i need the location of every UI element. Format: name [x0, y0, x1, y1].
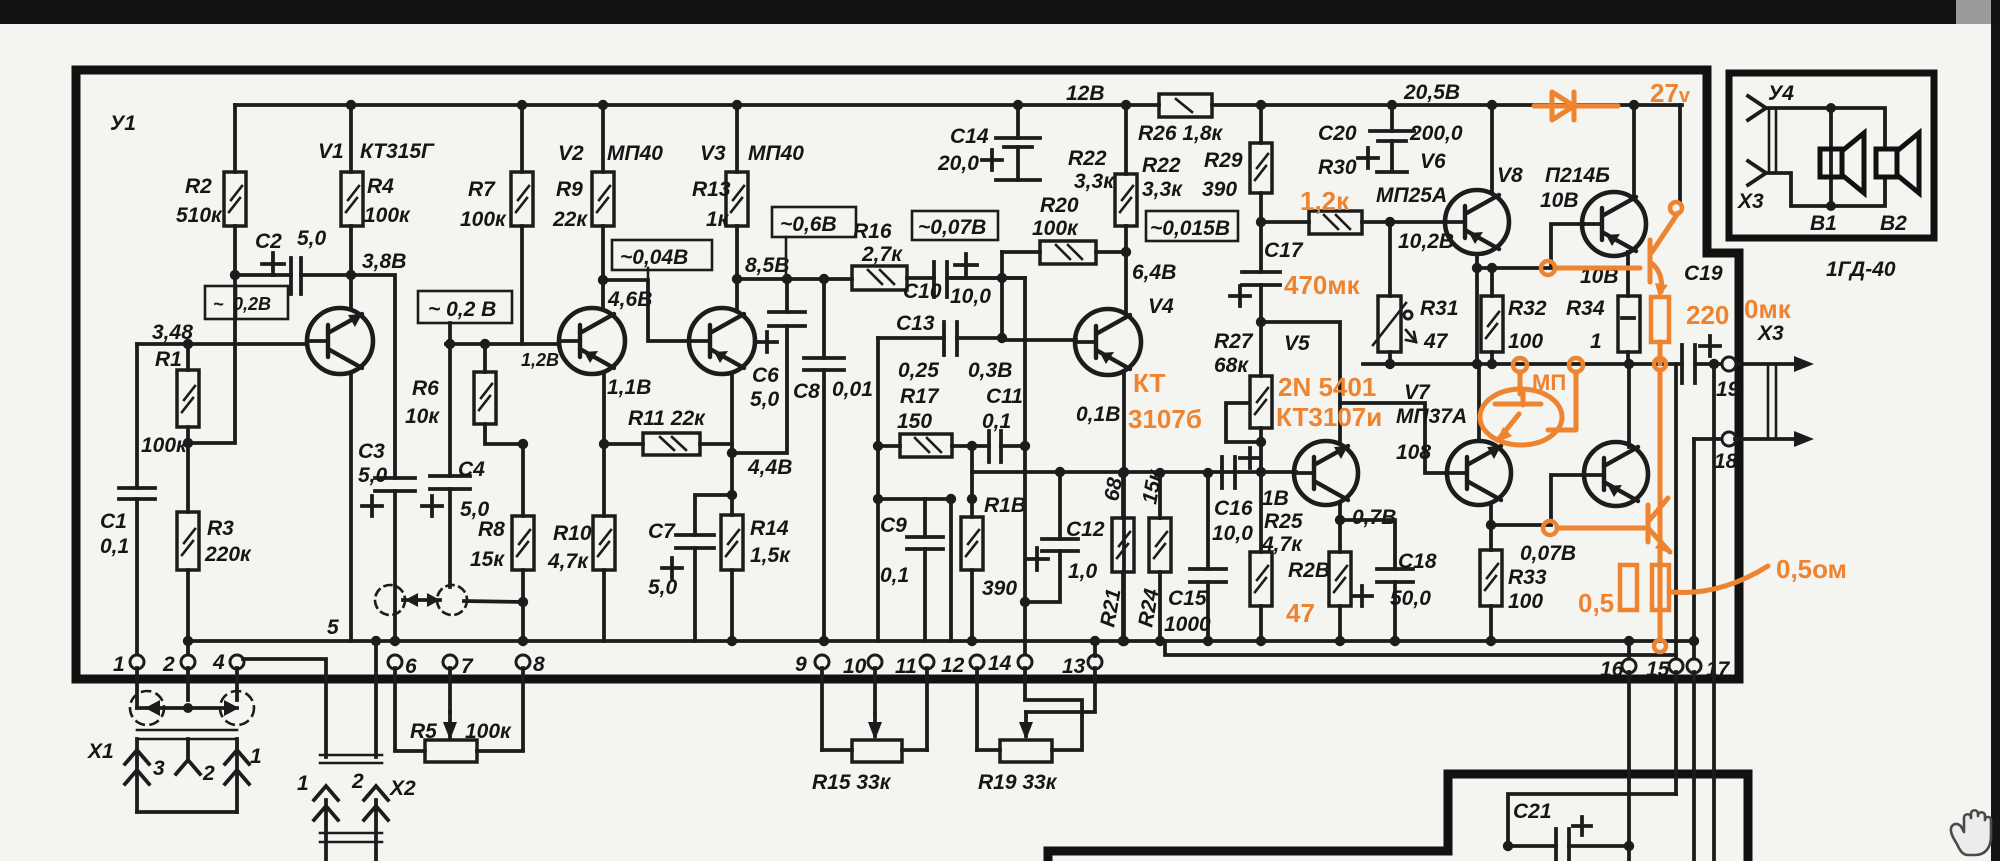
svg-text:47: 47	[1423, 330, 1449, 353]
svg-text:1,2В: 1,2В	[521, 350, 559, 370]
svg-text:12: 12	[941, 654, 965, 677]
svg-text:8: 8	[533, 653, 545, 676]
svg-text:У1: У1	[110, 112, 136, 135]
svg-text:15к: 15к	[470, 548, 505, 571]
svg-text:R1В: R1В	[984, 494, 1026, 517]
svg-text:R34: R34	[1566, 297, 1605, 320]
svg-text:~0,015В: ~0,015В	[1150, 217, 1230, 240]
svg-text:200,0: 200,0	[1409, 122, 1463, 145]
svg-text:68: 68	[1100, 476, 1127, 503]
svg-text:R6: R6	[412, 377, 439, 400]
svg-text:2,7к: 2,7к	[861, 243, 903, 266]
svg-text:47: 47	[1286, 598, 1315, 628]
svg-text:6: 6	[405, 655, 417, 678]
svg-text:R22: R22	[1068, 147, 1107, 170]
svg-text:R27: R27	[1214, 330, 1254, 353]
svg-text:R8: R8	[478, 518, 505, 541]
svg-text:1000: 1000	[1164, 613, 1211, 636]
svg-text:1: 1	[1590, 330, 1602, 353]
svg-text:C21: C21	[1513, 800, 1552, 823]
svg-text:R7: R7	[468, 178, 496, 201]
svg-text:14: 14	[988, 652, 1012, 675]
svg-text:4,6В: 4,6В	[607, 288, 652, 311]
svg-text:R33: R33	[1508, 566, 1547, 589]
svg-text:150: 150	[897, 410, 932, 433]
svg-text:МП37А: МП37А	[1396, 405, 1467, 428]
svg-text:3,3к: 3,3к	[1074, 170, 1115, 193]
svg-text:МП40: МП40	[607, 142, 663, 165]
svg-text:R29: R29	[1204, 149, 1243, 172]
svg-text:0,5ом: 0,5ом	[1776, 554, 1847, 584]
svg-text:V1: V1	[318, 140, 344, 163]
svg-text:C1: C1	[100, 510, 127, 533]
svg-text:5,0: 5,0	[358, 464, 388, 487]
svg-text:МП40: МП40	[748, 142, 804, 165]
svg-text:10: 10	[843, 655, 867, 678]
svg-text:V4: V4	[1148, 295, 1174, 318]
svg-text:~0,6В: ~0,6В	[780, 213, 837, 236]
svg-text:C7: C7	[648, 520, 676, 543]
svg-text:C19: C19	[1684, 262, 1723, 285]
svg-text:V6: V6	[1420, 150, 1446, 173]
svg-text:100к: 100к	[460, 208, 507, 231]
svg-text:16: 16	[1600, 658, 1624, 681]
svg-text:0,25: 0,25	[898, 359, 939, 382]
svg-text:4,4В: 4,4В	[747, 456, 792, 479]
svg-text:V8: V8	[1497, 164, 1523, 187]
svg-text:R19 33к: R19 33к	[978, 771, 1058, 794]
svg-text:П214Б: П214Б	[1545, 164, 1610, 187]
svg-text:C2: C2	[255, 230, 282, 253]
svg-text:13: 13	[1062, 655, 1086, 678]
svg-text:8,5В: 8,5В	[745, 254, 789, 277]
svg-text:1,1В: 1,1В	[607, 376, 651, 399]
svg-text:100к: 100к	[1032, 217, 1079, 240]
svg-text:50,0: 50,0	[1390, 587, 1431, 610]
svg-text:C20: C20	[1318, 122, 1357, 145]
svg-text:КТ315Г: КТ315Г	[360, 140, 435, 163]
svg-text:Х3: Х3	[1737, 190, 1764, 213]
svg-text:5: 5	[327, 616, 339, 639]
svg-text:0,5: 0,5	[1578, 588, 1614, 618]
svg-text:3,3к: 3,3к	[1142, 178, 1183, 201]
svg-text:390: 390	[1202, 178, 1237, 201]
svg-text:3107б: 3107б	[1128, 404, 1202, 434]
svg-text:R4: R4	[367, 175, 394, 198]
svg-text:100: 100	[1508, 330, 1543, 353]
svg-text:6,4В: 6,4В	[1132, 261, 1176, 284]
svg-text:R11 22к: R11 22к	[628, 407, 706, 430]
svg-text:1В: 1В	[1262, 487, 1289, 510]
svg-text:R13: R13	[692, 178, 731, 201]
svg-text:1,5к: 1,5к	[750, 544, 791, 567]
svg-text:1: 1	[250, 745, 262, 768]
svg-text:10,0: 10,0	[950, 285, 991, 308]
svg-text:5,0: 5,0	[648, 576, 678, 599]
svg-text:1: 1	[113, 653, 125, 676]
svg-text:19: 19	[1716, 378, 1740, 401]
svg-text:V3: V3	[700, 142, 726, 165]
svg-text:5,0: 5,0	[750, 388, 780, 411]
svg-text:0,07В: 0,07В	[1520, 542, 1576, 565]
svg-text:10В: 10В	[1540, 189, 1579, 212]
svg-text:~ 0,2 В: ~ 0,2 В	[428, 298, 496, 321]
svg-text:68к: 68к	[1214, 354, 1249, 377]
svg-text:4,7к: 4,7к	[547, 550, 589, 573]
svg-text:0,7В: 0,7В	[1352, 506, 1396, 529]
svg-text:C13: C13	[896, 312, 935, 335]
svg-text:Х3: Х3	[1757, 322, 1784, 345]
svg-text:1к: 1к	[706, 208, 730, 231]
svg-text:220: 220	[1686, 300, 1729, 330]
svg-text:R15 33к: R15 33к	[812, 771, 892, 794]
svg-text:2: 2	[162, 653, 175, 676]
svg-text:1,2к: 1,2к	[1300, 186, 1350, 216]
svg-text:C15: C15	[1168, 587, 1207, 610]
svg-text:100: 100	[1508, 590, 1543, 613]
svg-text:R32: R32	[1508, 297, 1547, 320]
svg-text:9: 9	[795, 653, 807, 676]
svg-text:0мк: 0мк	[1744, 294, 1792, 324]
svg-text:108: 108	[1396, 441, 1431, 464]
svg-text:R17: R17	[900, 385, 940, 408]
svg-text:C8: C8	[793, 380, 820, 403]
svg-text:R1: R1	[155, 348, 182, 371]
svg-text:0,1В: 0,1В	[1076, 403, 1120, 426]
svg-text:470мк: 470мк	[1284, 270, 1361, 300]
svg-text:R20: R20	[1040, 194, 1079, 217]
svg-text:10,0: 10,0	[1212, 522, 1253, 545]
svg-text:В1: В1	[1810, 212, 1837, 235]
svg-text:0,2В: 0,2В	[233, 294, 271, 314]
svg-text:R31: R31	[1420, 297, 1459, 320]
svg-text:~: ~	[213, 294, 224, 314]
svg-text:C11: C11	[986, 385, 1023, 408]
svg-text:2N 5401: 2N 5401	[1278, 372, 1376, 402]
svg-text:0,01: 0,01	[832, 378, 873, 401]
svg-text:C9: C9	[880, 514, 907, 537]
svg-text:20,0: 20,0	[937, 152, 979, 175]
svg-text:У4: У4	[1768, 82, 1794, 105]
svg-text:R25: R25	[1264, 510, 1303, 533]
svg-text:0,1: 0,1	[880, 564, 909, 587]
svg-text:20,5В: 20,5В	[1403, 81, 1460, 104]
svg-text:22к: 22к	[552, 208, 588, 231]
svg-text:R2: R2	[185, 175, 212, 198]
svg-text:R16: R16	[853, 220, 892, 243]
svg-text:C14: C14	[950, 125, 989, 148]
svg-text:V2: V2	[558, 142, 584, 165]
svg-text:12В: 12В	[1066, 82, 1105, 105]
svg-text:C16: C16	[1214, 497, 1253, 520]
svg-text:V7: V7	[1404, 381, 1431, 404]
svg-text:17: 17	[1706, 658, 1731, 681]
svg-text:C6: C6	[752, 364, 779, 387]
svg-text:100к: 100к	[141, 434, 188, 457]
svg-text:C17: C17	[1264, 239, 1304, 262]
svg-text:4: 4	[212, 651, 225, 674]
svg-text:220к: 220к	[204, 543, 252, 566]
svg-text:3: 3	[153, 757, 165, 780]
svg-text:Х1: Х1	[87, 740, 114, 763]
svg-text:C10: C10	[903, 280, 942, 303]
svg-text:15: 15	[1646, 658, 1670, 681]
svg-text:C4: C4	[458, 458, 485, 481]
svg-text:C18: C18	[1398, 550, 1437, 573]
svg-text:КТ: КТ	[1133, 368, 1166, 398]
svg-text:1ГД-40: 1ГД-40	[1826, 258, 1896, 281]
svg-text:3,8В: 3,8В	[362, 250, 406, 273]
svg-text:5,0: 5,0	[297, 227, 327, 250]
svg-text:МП25А: МП25А	[1376, 184, 1447, 207]
svg-text:R26 1,8к: R26 1,8к	[1138, 122, 1224, 145]
svg-text:R3: R3	[207, 517, 234, 540]
svg-text:1,0: 1,0	[1068, 560, 1098, 583]
svg-text:2: 2	[202, 762, 215, 785]
svg-text:1: 1	[297, 772, 309, 795]
svg-text:18: 18	[1714, 450, 1738, 473]
svg-text:11: 11	[895, 655, 917, 678]
svg-text:R22: R22	[1142, 154, 1181, 177]
svg-text:510к: 510к	[176, 204, 223, 227]
svg-text:R2В: R2В	[1288, 559, 1330, 582]
svg-text:390: 390	[982, 577, 1017, 600]
svg-text:R9: R9	[556, 178, 583, 201]
svg-text:V5: V5	[1284, 332, 1310, 355]
svg-text:Х2: Х2	[389, 777, 416, 800]
svg-text:C12: C12	[1066, 518, 1105, 541]
svg-text:C3: C3	[358, 440, 385, 463]
svg-text:7: 7	[461, 655, 474, 678]
svg-text:10к: 10к	[405, 405, 440, 428]
svg-text:0,1: 0,1	[982, 410, 1011, 433]
svg-text:~0,04В: ~0,04В	[620, 246, 688, 269]
svg-text:R10: R10	[553, 522, 592, 545]
svg-text:~0,07В: ~0,07В	[918, 216, 986, 239]
svg-text:0,3В: 0,3В	[968, 359, 1012, 382]
svg-text:2: 2	[351, 770, 364, 793]
svg-text:КТ3107и: КТ3107и	[1276, 402, 1382, 432]
svg-text:100к: 100к	[364, 204, 411, 227]
svg-text:0,1: 0,1	[100, 535, 129, 558]
svg-text:R30: R30	[1318, 156, 1357, 179]
svg-text:В2: В2	[1880, 212, 1907, 235]
svg-text:R14: R14	[750, 517, 789, 540]
